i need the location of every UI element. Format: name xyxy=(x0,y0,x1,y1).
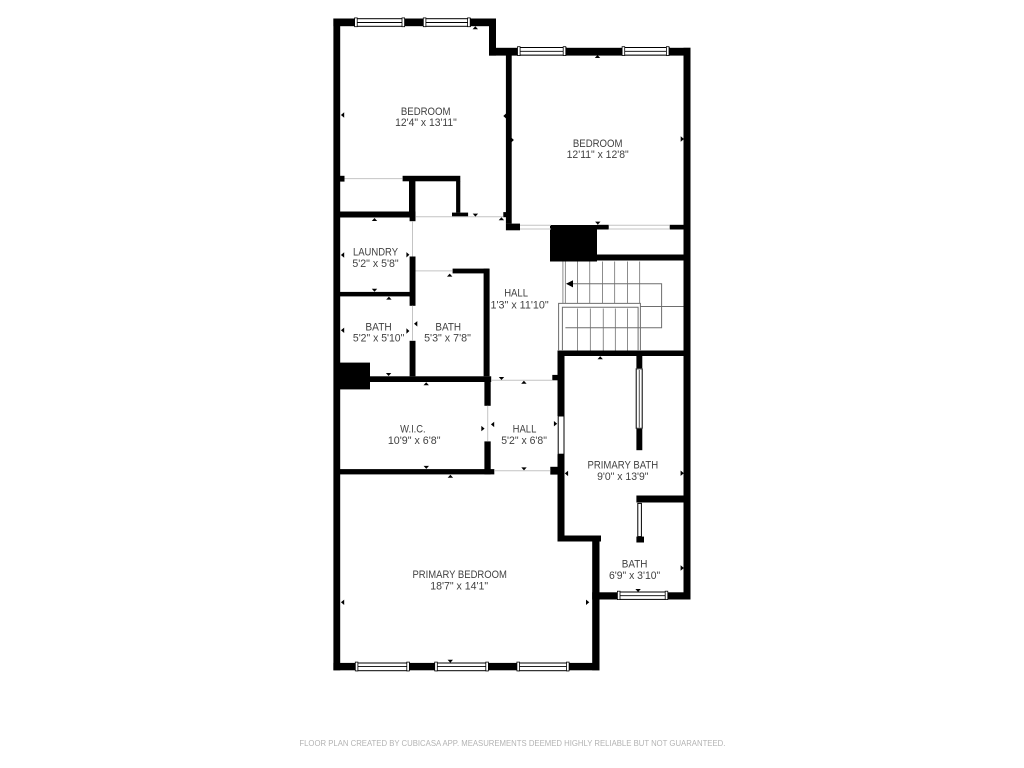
svg-text:10'9" x 6'8": 10'9" x 6'8" xyxy=(388,435,441,447)
svg-text:HALL: HALL xyxy=(513,424,537,436)
svg-text:5'2" x 5'8": 5'2" x 5'8" xyxy=(352,258,399,270)
svg-text:5'2" x 6'8": 5'2" x 6'8" xyxy=(501,435,547,447)
svg-text:W.I.C.: W.I.C. xyxy=(400,424,426,436)
svg-text:9'0" x 13'9": 9'0" x 13'9" xyxy=(597,471,649,483)
svg-text:6'9" x 3'10": 6'9" x 3'10" xyxy=(609,570,661,582)
svg-text:PRIMARY BEDROOM: PRIMARY BEDROOM xyxy=(412,569,507,581)
svg-text:LAUNDRY: LAUNDRY xyxy=(353,247,399,259)
svg-text:BATH: BATH xyxy=(365,321,391,333)
svg-text:BATH: BATH xyxy=(435,321,461,333)
svg-text:1'3" x 11'10": 1'3" x 11'10" xyxy=(491,300,549,312)
svg-text:BATH: BATH xyxy=(622,558,648,570)
svg-text:FLOOR PLAN CREATED BY CUBICASA: FLOOR PLAN CREATED BY CUBICASA APP. MEAS… xyxy=(299,738,725,748)
svg-text:HALL: HALL xyxy=(504,288,528,300)
svg-text:5'2" x 5'10": 5'2" x 5'10" xyxy=(353,333,405,345)
svg-text:5'3" x 7'8": 5'3" x 7'8" xyxy=(424,333,471,345)
svg-text:18'7" x 14'1": 18'7" x 14'1" xyxy=(430,580,488,592)
svg-text:12'4" x 13'11": 12'4" x 13'11" xyxy=(395,117,457,129)
svg-text:12'11" x 12'8": 12'11" x 12'8" xyxy=(567,149,629,161)
svg-text:PRIMARY BATH: PRIMARY BATH xyxy=(587,459,658,471)
